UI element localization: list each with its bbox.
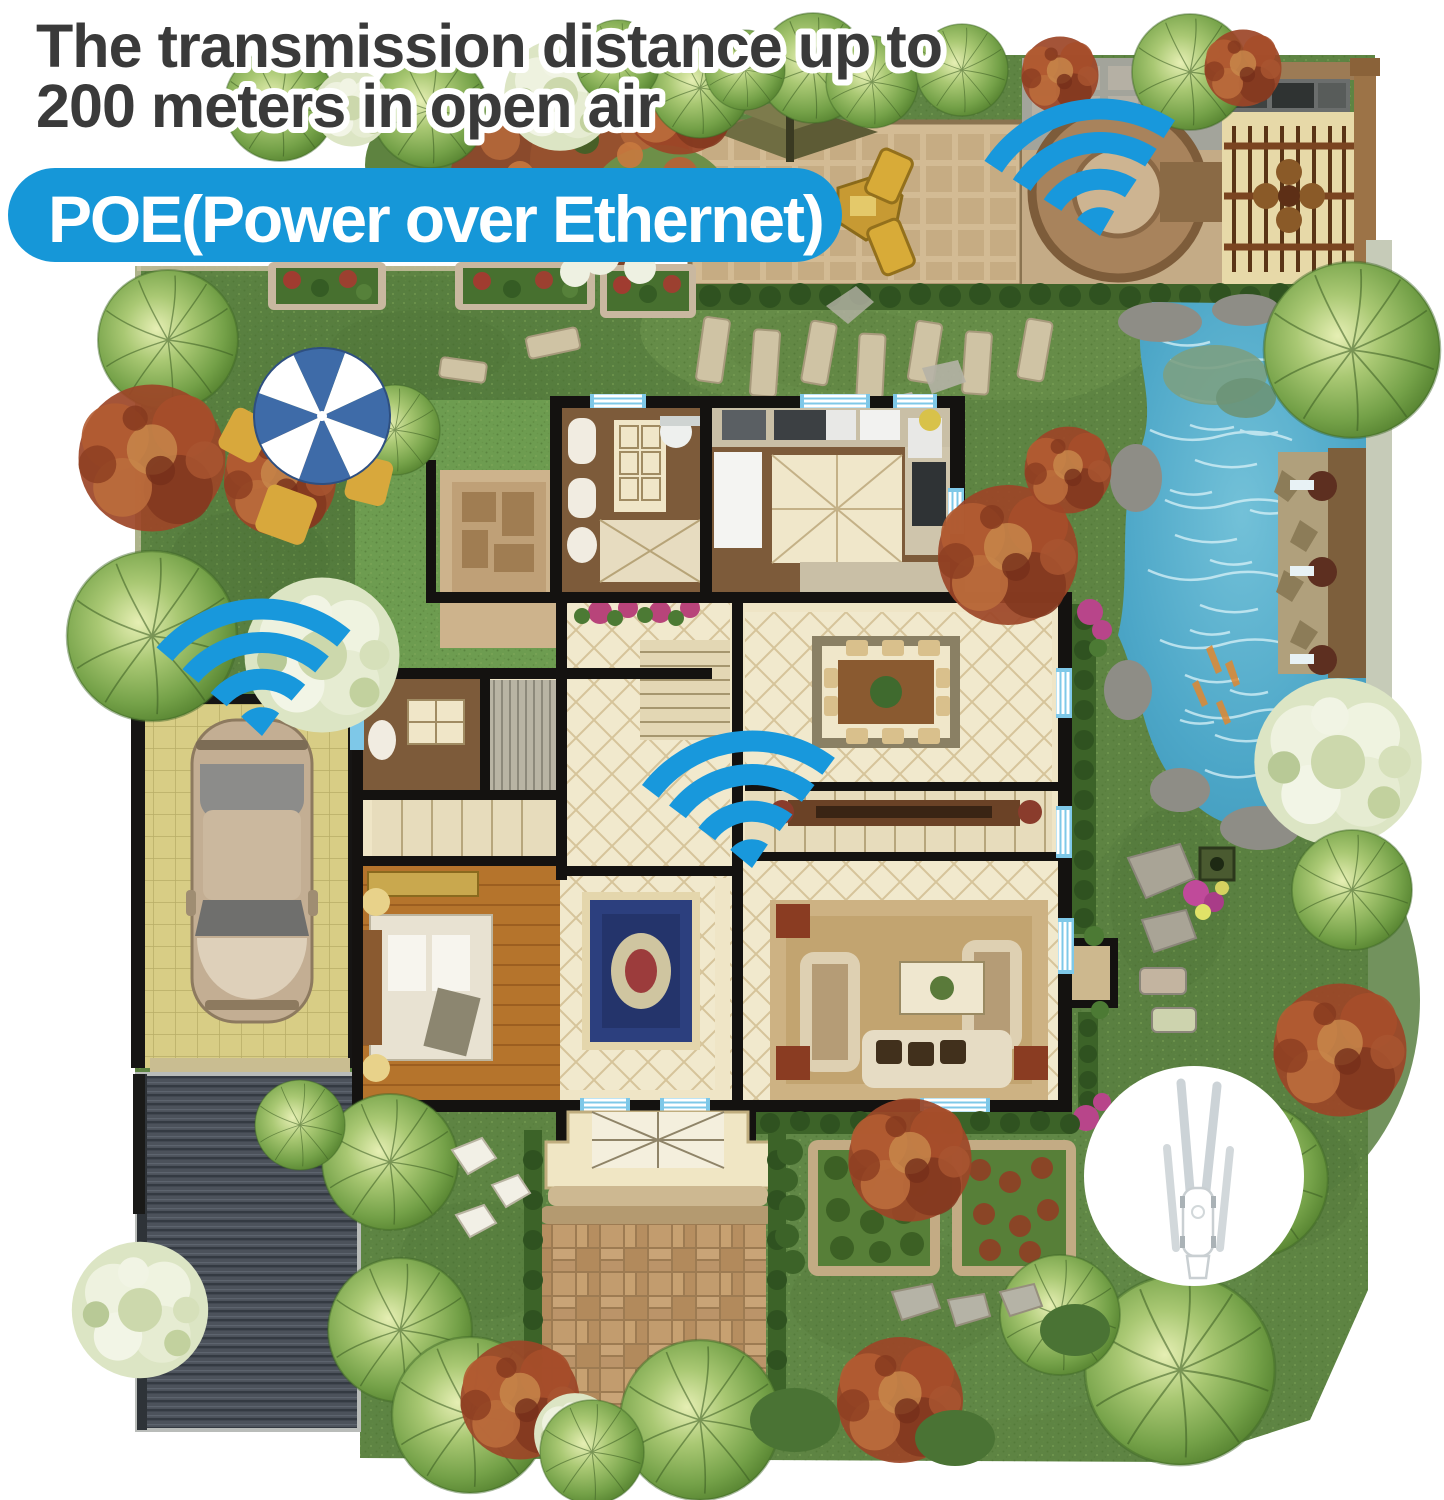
svg-text:POE(Power over Ethernet): POE(Power over Ethernet) <box>48 182 823 256</box>
svg-text:The transmission distance up t: The transmission distance up to <box>36 12 942 80</box>
svg-text:200 meters in open air: 200 meters in open air <box>36 72 659 140</box>
